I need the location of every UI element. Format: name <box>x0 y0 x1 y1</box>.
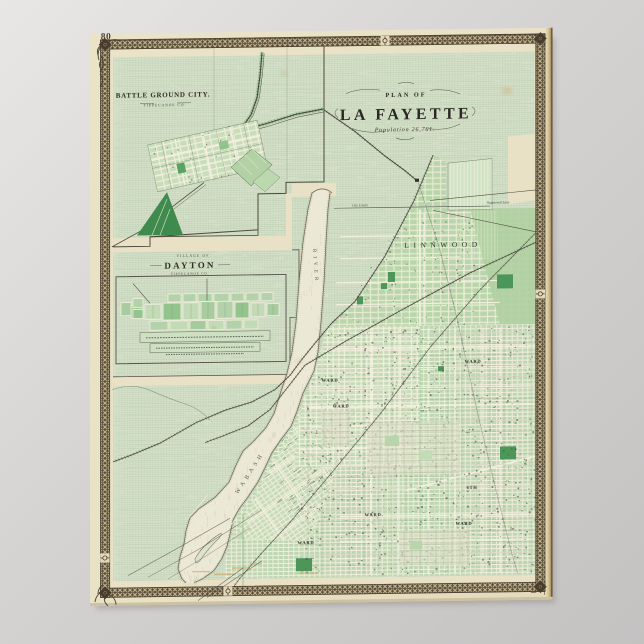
svg-text:LINNWOOD: LINNWOOD <box>404 240 481 250</box>
svg-text:VILLAGE OF: VILLAGE OF <box>176 253 209 257</box>
svg-text:WARD: WARD <box>322 378 339 383</box>
svg-text:BATTLE GROUND CITY.: BATTLE GROUND CITY. <box>116 90 210 99</box>
svg-text:WARD: WARD <box>456 521 473 526</box>
svg-text:City Limits: City Limits <box>352 203 368 207</box>
svg-text:WARD: WARD <box>333 404 350 409</box>
svg-text:Happersett Lane: Happersett Lane <box>486 200 510 204</box>
svg-text:PLAN OF: PLAN OF <box>386 91 427 99</box>
svg-text:WARD: WARD <box>465 359 482 364</box>
svg-text:Population 26,761.: Population 26,761. <box>374 127 436 134</box>
svg-text:LA FAYETTE: LA FAYETTE <box>340 105 472 124</box>
svg-text:WARD: WARD <box>298 540 315 545</box>
svg-text:6TH: 6TH <box>466 485 477 490</box>
svg-text:DAYTON: DAYTON <box>164 260 215 271</box>
svg-text:WARD.: WARD. <box>365 512 384 517</box>
